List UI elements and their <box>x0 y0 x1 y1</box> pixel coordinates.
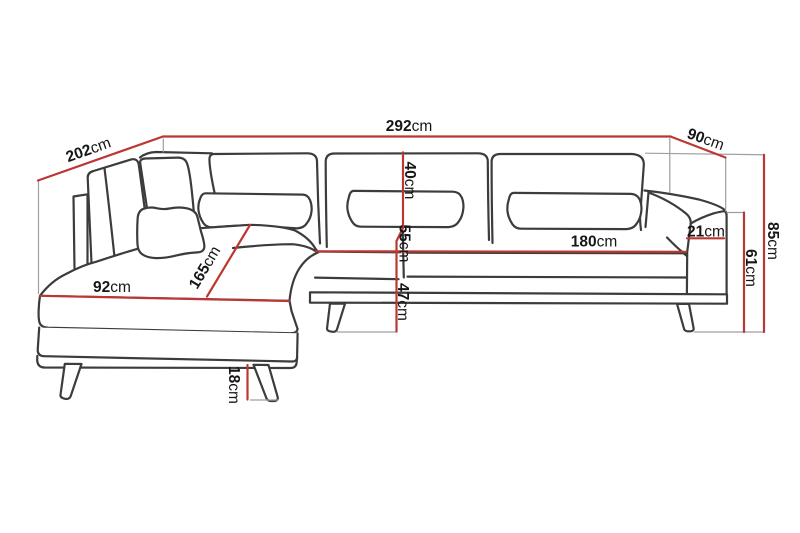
svg-text:55cm: 55cm <box>396 225 413 263</box>
svg-text:21cm: 21cm <box>687 223 725 240</box>
svg-text:292cm: 292cm <box>386 118 433 135</box>
svg-text:180cm: 180cm <box>571 234 618 251</box>
svg-text:85cm: 85cm <box>764 222 781 260</box>
svg-text:61cm: 61cm <box>742 249 759 287</box>
svg-text:92cm: 92cm <box>93 279 131 296</box>
svg-text:18cm: 18cm <box>225 366 242 404</box>
svg-text:47cm: 47cm <box>394 283 411 321</box>
svg-text:40cm: 40cm <box>401 162 418 200</box>
